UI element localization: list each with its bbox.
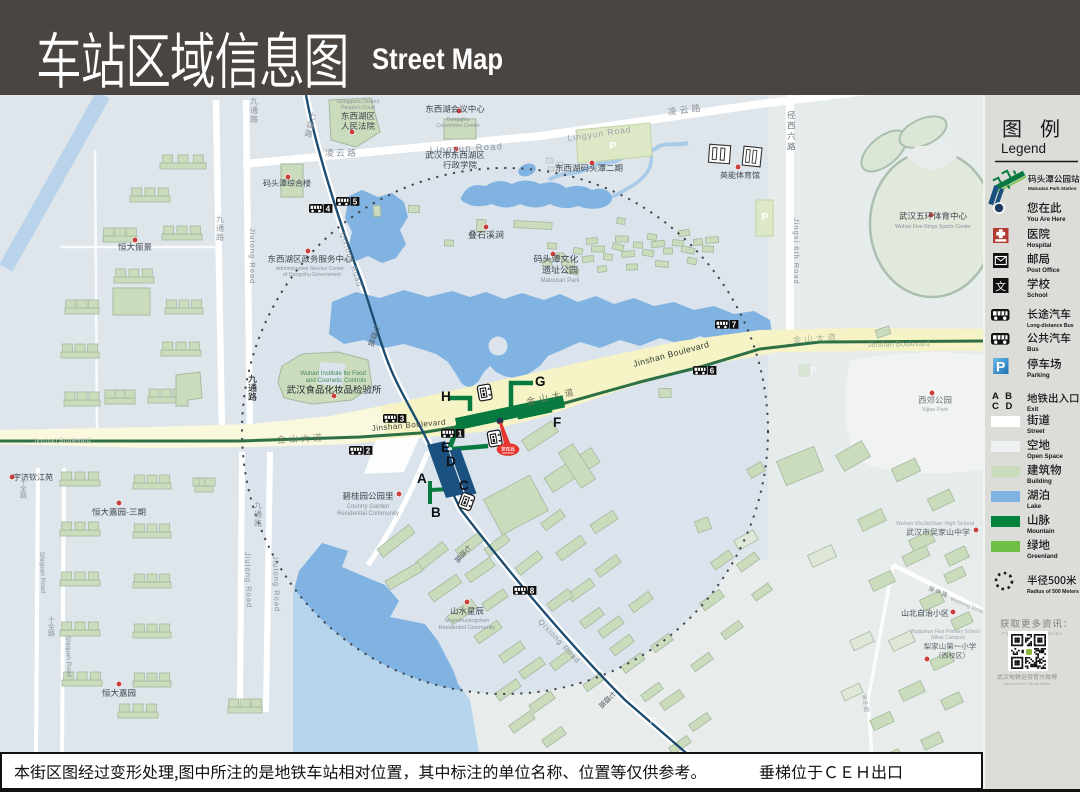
svg-text:Convention Center: Convention Center bbox=[436, 123, 480, 129]
svg-text:P: P bbox=[609, 140, 616, 152]
svg-text:Residential Community: Residential Community bbox=[337, 511, 399, 517]
svg-text:6: 6 bbox=[710, 366, 715, 375]
svg-text:Xijiao Park: Xijiao Park bbox=[922, 407, 949, 413]
svg-text:4: 4 bbox=[326, 204, 331, 213]
svg-text:Parking: Parking bbox=[1027, 372, 1050, 379]
svg-text:Post Office: Post Office bbox=[1027, 267, 1060, 274]
svg-text:Mountain: Mountain bbox=[1027, 528, 1055, 535]
svg-text:Long-distance Bus: Long-distance Bus bbox=[1027, 323, 1074, 329]
svg-text:School: School bbox=[1027, 292, 1048, 299]
svg-text:E: E bbox=[441, 440, 450, 455]
svg-text:C D: C D bbox=[992, 401, 1014, 412]
svg-text:P: P bbox=[649, 715, 656, 727]
svg-text:Jinshan Boulevard: Jinshan Boulevard bbox=[868, 339, 930, 349]
svg-text:Building: Building bbox=[1027, 478, 1052, 485]
svg-text:Jiutong Road: Jiutong Road bbox=[248, 228, 257, 284]
svg-text:Wuhan Five Rings Sports Center: Wuhan Five Rings Sports Center bbox=[895, 224, 971, 230]
svg-text:B: B bbox=[431, 505, 441, 520]
svg-text:Jinshan Boulevard: Jinshan Boulevard bbox=[33, 437, 91, 445]
svg-text:(West Campus): (West Campus) bbox=[931, 635, 966, 641]
svg-text:Jingxi 6th Road: Jingxi 6th Road bbox=[792, 218, 801, 285]
svg-text:F: F bbox=[553, 415, 561, 430]
svg-text:Shanshuixingchen: Shanshuixingchen bbox=[445, 618, 490, 624]
svg-text:G: G bbox=[535, 374, 546, 389]
svg-text:Shiquan Road: Shiquan Road bbox=[38, 552, 46, 594]
svg-text:C: C bbox=[459, 478, 469, 493]
svg-text:and Cosmetic Controls: and Cosmetic Controls bbox=[306, 378, 367, 384]
svg-text:Lake: Lake bbox=[1027, 503, 1042, 510]
svg-text:Exit: Exit bbox=[1027, 406, 1038, 413]
svg-text:1: 1 bbox=[458, 429, 463, 438]
svg-text:Wuhan WuJiaShan High School: Wuhan WuJiaShan High School bbox=[896, 521, 974, 527]
svg-text:Bus: Bus bbox=[1027, 346, 1039, 353]
svg-text:H: H bbox=[441, 389, 451, 404]
svg-text:D: D bbox=[446, 454, 456, 469]
svg-text:Residential Community: Residential Community bbox=[439, 625, 496, 631]
svg-text:Country Garden: Country Garden bbox=[347, 504, 390, 510]
svg-text:Radius of 500 Meters: Radius of 500 Meters bbox=[1027, 589, 1079, 595]
svg-text:5: 5 bbox=[353, 197, 358, 206]
svg-text:Street: Street bbox=[1027, 428, 1045, 435]
svg-text:Wuhan Institute for Food: Wuhan Institute for Food bbox=[300, 371, 366, 377]
svg-text:Shiquan Road: Shiquan Road bbox=[64, 636, 72, 678]
svg-text:8: 8 bbox=[530, 586, 535, 595]
svg-text:2: 2 bbox=[366, 446, 371, 455]
svg-text:A: A bbox=[417, 471, 427, 486]
svg-text:Matoutan Park Station: Matoutan Park Station bbox=[1028, 186, 1077, 191]
svg-text:P: P bbox=[996, 359, 1005, 375]
svg-text:P: P bbox=[761, 211, 768, 223]
svg-text:Hospital: Hospital bbox=[1027, 242, 1052, 249]
svg-text:People's Court: People's Court bbox=[341, 105, 375, 111]
svg-text:Wuhan Metro Official Weibo: Wuhan Metro Official Weibo bbox=[1003, 682, 1050, 686]
svg-text:Street Map: Street Map bbox=[372, 43, 503, 76]
svg-text:You Are Here: You Are Here bbox=[1027, 216, 1066, 223]
svg-text:Open Space: Open Space bbox=[1027, 453, 1063, 460]
svg-text:P: P bbox=[810, 365, 817, 377]
svg-text:of Dongxihu Government: of Dongxihu Government bbox=[283, 272, 341, 278]
svg-text:Greenland: Greenland bbox=[1027, 553, 1058, 560]
svg-text:7: 7 bbox=[732, 320, 737, 329]
svg-text:Matoutan Park: Matoutan Park bbox=[540, 278, 580, 284]
svg-text:Legend: Legend bbox=[1001, 141, 1046, 156]
